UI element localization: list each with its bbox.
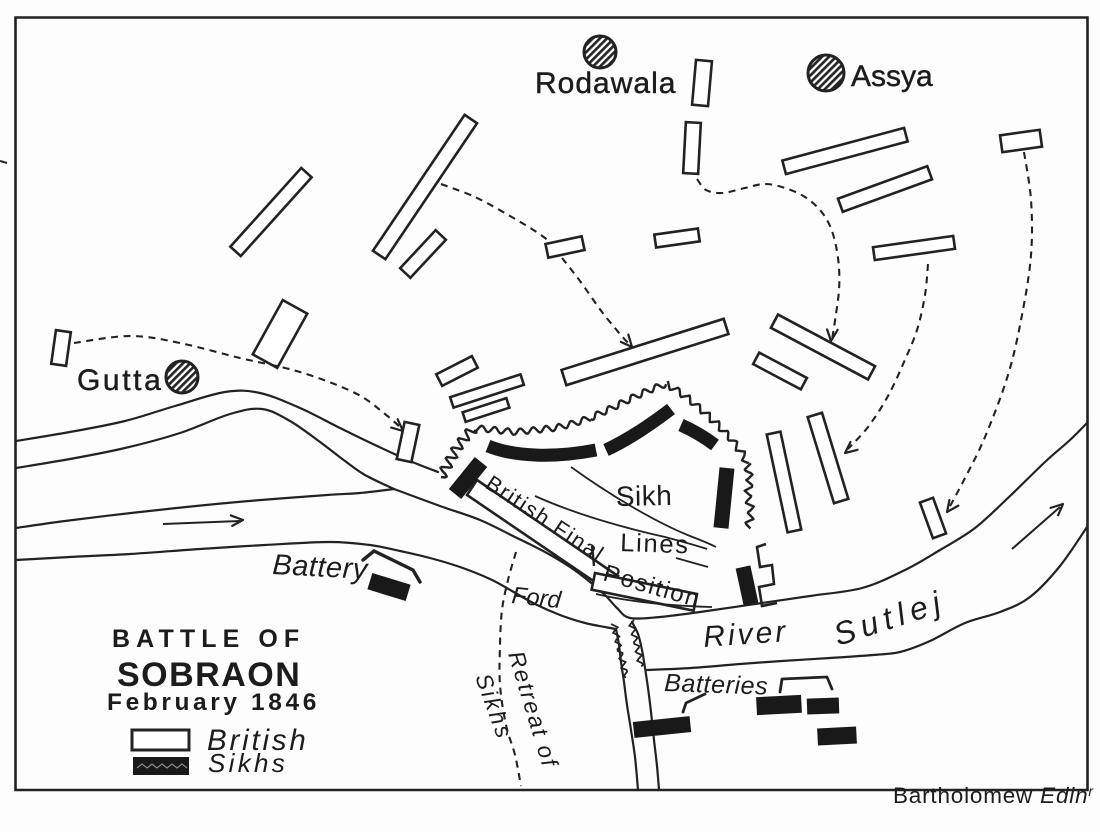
svg-text:Assya: Assya [851, 60, 933, 93]
svg-text:River: River [702, 615, 789, 654]
svg-text:Batteries: Batteries [664, 669, 769, 701]
svg-text:Battery: Battery [272, 549, 370, 586]
svg-text:BATTLE OF: BATTLE OF [112, 625, 305, 653]
svg-text:Sikh: Sikh [616, 480, 673, 512]
svg-text:Ford: Ford [510, 582, 563, 614]
svg-text:Rodawala: Rodawala [535, 67, 676, 100]
svg-text:Bartholomew Edinr: Bartholomew Edinr [893, 783, 1094, 808]
svg-text:Gutta: Gutta [77, 364, 163, 397]
svg-text:February 1846: February 1846 [107, 689, 320, 716]
svg-text:Sikhs: Sikhs [208, 748, 288, 778]
svg-text:Lines: Lines [620, 529, 690, 559]
